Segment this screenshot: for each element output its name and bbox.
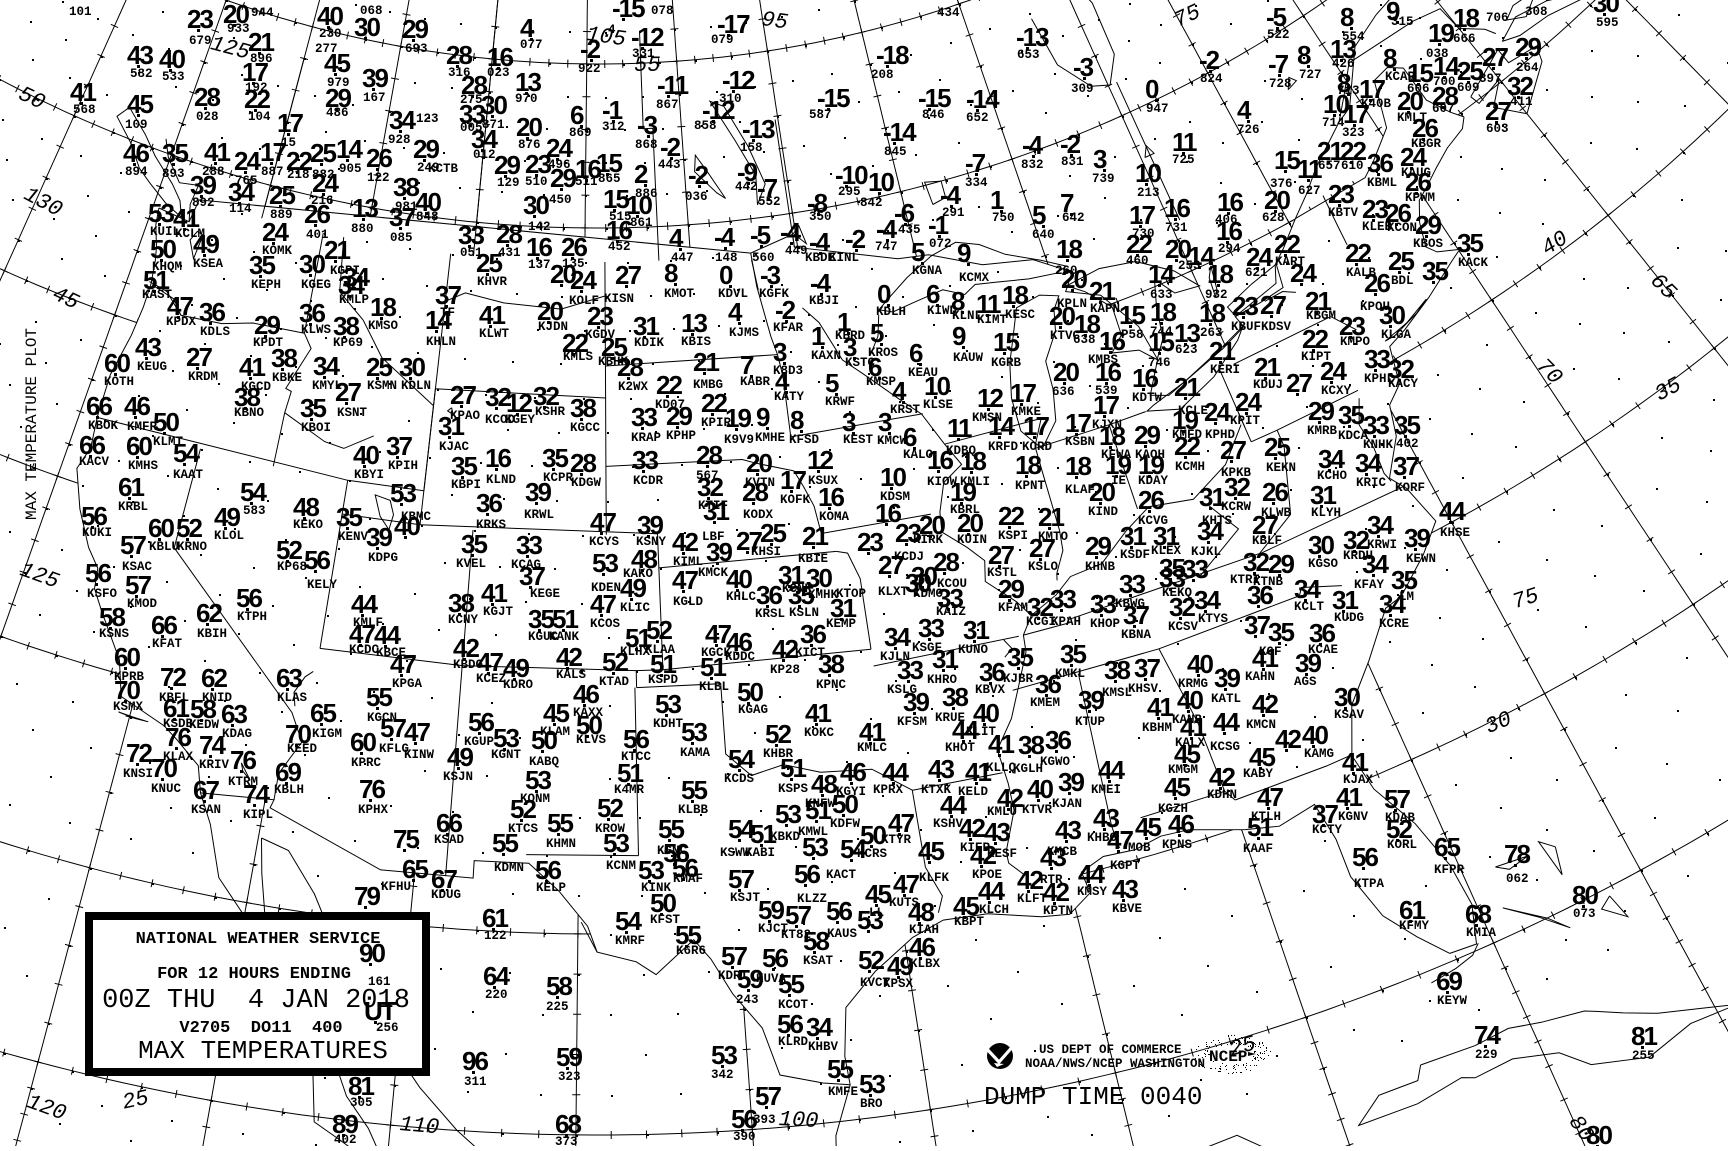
svg-text:KJBR: KJBR (1003, 672, 1034, 686)
svg-text:KAUW: KAUW (953, 351, 984, 365)
svg-text:22: 22 (1174, 431, 1200, 461)
svg-text:34: 34 (1355, 448, 1382, 478)
svg-text:KOKC: KOKC (804, 726, 835, 740)
svg-text:KDLH: KDLH (876, 305, 906, 319)
svg-text:66: 66 (151, 610, 177, 640)
svg-text:893: 893 (162, 167, 185, 181)
svg-text:KSAV: KSAV (1334, 708, 1365, 722)
svg-text:55: 55 (778, 969, 804, 999)
svg-text:KBTV: KBTV (1328, 206, 1359, 220)
svg-text:18: 18 (1199, 298, 1225, 328)
svg-text:KART: KART (1275, 255, 1306, 269)
svg-text:KVEL: KVEL (456, 557, 486, 571)
svg-text:KDUG: KDUG (431, 888, 461, 902)
svg-text:642: 642 (1062, 211, 1085, 225)
svg-text:45: 45 (918, 836, 944, 866)
svg-text:43: 43 (928, 754, 954, 784)
svg-text:KCOS: KCOS (590, 617, 621, 631)
svg-text:633: 633 (1150, 288, 1173, 302)
svg-text:25: 25 (269, 180, 295, 210)
svg-text:51: 51 (700, 652, 726, 682)
svg-text:39: 39 (366, 522, 392, 552)
svg-text:122: 122 (484, 929, 507, 943)
svg-text:47: 47 (1107, 825, 1133, 855)
svg-text:KPIH: KPIH (388, 459, 418, 473)
svg-text:28: 28 (742, 477, 768, 507)
svg-text:KBOI: KBOI (301, 421, 331, 435)
svg-text:17: 17 (1093, 390, 1119, 420)
svg-text:970: 970 (515, 92, 538, 106)
svg-text:FOR 12 HOURS ENDING: FOR 12 HOURS ENDING (157, 965, 351, 984)
svg-text:894: 894 (125, 165, 148, 179)
svg-text:50: 50 (153, 407, 179, 437)
svg-text:KRFD: KRFD (988, 440, 1019, 454)
svg-text:35: 35 (1338, 400, 1364, 430)
svg-text:023: 023 (487, 66, 510, 80)
svg-text:55: 55 (827, 1054, 853, 1084)
svg-text:33: 33 (1364, 344, 1390, 374)
svg-text:19: 19 (1428, 18, 1454, 48)
svg-text:31: 31 (703, 496, 729, 526)
svg-text:KSLN: KSLN (789, 606, 819, 620)
svg-text:882: 882 (312, 168, 335, 182)
svg-text:47: 47 (404, 717, 430, 747)
svg-text:57: 57 (728, 864, 754, 894)
svg-text:824: 824 (1200, 72, 1223, 86)
svg-text:KDSV: KDSV (1261, 320, 1292, 334)
svg-text:35: 35 (300, 393, 326, 423)
svg-text:533: 533 (162, 70, 185, 84)
svg-text:460: 460 (1126, 254, 1149, 268)
svg-text:085: 085 (390, 231, 413, 245)
svg-text:KSMN: KSMN (367, 379, 397, 393)
svg-text:27: 27 (1482, 42, 1508, 72)
svg-text:KBML: KBML (1367, 176, 1397, 190)
svg-text:KATY: KATY (774, 390, 805, 404)
svg-text:47: 47 (1257, 782, 1283, 812)
svg-text:KSEA: KSEA (193, 257, 224, 271)
svg-text:45: 45 (543, 698, 569, 728)
svg-text:46: 46 (573, 679, 599, 709)
svg-text:41: 41 (965, 757, 991, 787)
svg-text:18: 18 (1099, 421, 1125, 451)
svg-text:KMLC: KMLC (857, 741, 888, 755)
svg-text:49: 49 (447, 742, 473, 772)
svg-text:868: 868 (635, 138, 658, 152)
svg-text:41: 41 (239, 352, 265, 382)
svg-text:KSAN: KSAN (191, 803, 221, 817)
svg-text:23: 23 (587, 301, 613, 331)
svg-text:50: 50 (531, 725, 557, 755)
svg-text:28: 28 (696, 440, 722, 470)
svg-text:KMHE: KMHE (755, 431, 785, 445)
svg-text:KBVX: KBVX (975, 683, 1006, 697)
svg-text:KPRC: KPRC (351, 756, 382, 770)
svg-text:846: 846 (922, 108, 945, 122)
svg-text:KEUG: KEUG (137, 360, 167, 374)
svg-text:KEPH: KEPH (251, 278, 281, 292)
svg-text:KFSM: KFSM (897, 715, 927, 729)
svg-text:57: 57 (755, 1081, 781, 1111)
svg-text:17: 17 (1129, 200, 1155, 230)
svg-text:443: 443 (658, 158, 681, 172)
svg-text:59: 59 (556, 1042, 582, 1072)
svg-text:609: 609 (1457, 81, 1480, 95)
svg-text:37: 37 (389, 202, 415, 232)
svg-text:29: 29 (550, 163, 576, 193)
svg-text:24: 24 (234, 146, 261, 176)
svg-text:KLSE: KLSE (923, 398, 953, 412)
svg-text:41: 41 (204, 137, 230, 167)
svg-text:33: 33 (1119, 569, 1145, 599)
svg-text:64: 64 (483, 961, 510, 991)
svg-text:22: 22 (701, 388, 727, 418)
svg-text:731: 731 (1165, 221, 1188, 235)
svg-text:KHLN: KHLN (426, 335, 456, 349)
svg-text:KLND: KLND (486, 473, 517, 487)
svg-text:60: 60 (148, 513, 174, 543)
svg-text:KMIA: KMIA (1466, 926, 1497, 940)
svg-text:16: 16 (818, 482, 844, 512)
svg-text:309: 309 (1071, 82, 1094, 96)
svg-text:BRO: BRO (860, 1097, 883, 1111)
svg-text:MAX TEMPERATURES: MAX TEMPERATURES (138, 1036, 388, 1066)
svg-text:KSMX: KSMX (113, 700, 144, 714)
svg-text:KINW: KINW (404, 748, 435, 762)
svg-text:35: 35 (451, 451, 477, 481)
svg-text:23: 23 (1328, 179, 1354, 209)
svg-text:26: 26 (304, 199, 330, 229)
svg-text:39: 39 (1078, 685, 1104, 715)
svg-text:39: 39 (1295, 648, 1321, 678)
svg-text:35: 35 (162, 138, 188, 168)
svg-text:KDHN: KDHN (1207, 788, 1237, 802)
svg-text:KCDS: KCDS (724, 772, 755, 786)
svg-text:26: 26 (366, 143, 392, 173)
svg-text:KTAD: KTAD (599, 675, 630, 689)
svg-text:243: 243 (736, 993, 759, 1007)
svg-text:KGNT: KGNT (491, 748, 522, 762)
svg-text:727: 727 (1299, 68, 1322, 82)
svg-text:KMRF: KMRF (615, 934, 645, 948)
svg-text:41: 41 (479, 300, 505, 330)
svg-text:34: 34 (884, 622, 911, 652)
svg-text:-11: -11 (657, 70, 689, 100)
svg-text:KSAT: KSAT (803, 954, 834, 968)
svg-text:KBOS: KBOS (1413, 237, 1444, 251)
svg-text:44: 44 (1439, 496, 1466, 526)
svg-text:36: 36 (756, 580, 782, 610)
svg-text:18: 18 (1002, 280, 1028, 310)
svg-text:58: 58 (546, 971, 572, 1001)
svg-text:40: 40 (1302, 720, 1328, 750)
svg-text:739: 739 (1092, 172, 1115, 186)
svg-text:KOTH: KOTH (104, 375, 134, 389)
svg-text:402: 402 (334, 1133, 357, 1146)
svg-text:35: 35 (1394, 410, 1420, 440)
svg-text:845: 845 (884, 145, 907, 159)
svg-text:-14: -14 (966, 84, 1000, 114)
svg-text:42: 42 (1252, 689, 1278, 719)
svg-text:24: 24 (1204, 397, 1231, 427)
svg-text:46: 46 (840, 757, 866, 787)
svg-text:17: 17 (260, 137, 286, 167)
svg-text:KCEZ: KCEZ (476, 672, 506, 686)
svg-text:27: 27 (1029, 533, 1055, 563)
svg-text:18: 18 (1453, 3, 1479, 33)
svg-text:666: 666 (1453, 32, 1476, 46)
svg-text:KAMA: KAMA (680, 746, 711, 760)
svg-text:54: 54 (728, 744, 755, 774)
svg-text:KMAF: KMAF (673, 872, 703, 886)
svg-text:KBIH: KBIH (197, 627, 227, 641)
svg-text:12: 12 (977, 383, 1003, 413)
svg-text:104: 104 (248, 110, 271, 124)
svg-text:KGEY: KGEY (505, 413, 536, 427)
svg-text:51: 51 (780, 753, 806, 783)
svg-text:110: 110 (399, 1112, 441, 1140)
svg-text:10: 10 (868, 167, 894, 197)
svg-text:657: 657 (1318, 159, 1341, 173)
svg-text:18: 18 (1207, 259, 1233, 289)
svg-text:KABR: KABR (740, 375, 771, 389)
svg-text:KELP: KELP (536, 881, 566, 895)
svg-text:29: 29 (666, 401, 692, 431)
svg-text:220: 220 (485, 988, 508, 1002)
svg-text:342: 342 (711, 1068, 734, 1082)
svg-text:23: 23 (187, 4, 213, 34)
svg-text:137: 137 (528, 258, 551, 272)
svg-text:31: 31 (438, 411, 464, 441)
svg-text:17: 17 (277, 108, 303, 138)
svg-text:33: 33 (1090, 589, 1116, 619)
svg-text:KBLU: KBLU (149, 540, 179, 554)
svg-text:45: 45 (1135, 812, 1161, 842)
svg-text:56: 56 (794, 859, 820, 889)
svg-text:KCRS: KCRS (857, 847, 888, 861)
svg-text:KDFW: KDFW (830, 817, 861, 831)
svg-text:308: 308 (1525, 5, 1548, 19)
svg-text:KCRE: KCRE (1379, 617, 1409, 631)
svg-text:26: 26 (1138, 485, 1164, 515)
svg-text:20: 20 (1061, 264, 1087, 294)
svg-text:KGNA: KGNA (912, 264, 943, 278)
svg-text:KMSO: KMSO (368, 319, 399, 333)
svg-text:34: 34 (1367, 510, 1394, 540)
svg-text:KEMP: KEMP (826, 617, 856, 631)
svg-text:KFMY: KFMY (1399, 919, 1430, 933)
svg-text:44: 44 (351, 589, 378, 619)
svg-text:KIPL: KIPL (243, 808, 273, 822)
svg-text:KGPT: KGPT (1110, 859, 1141, 873)
svg-text:31: 31 (1120, 521, 1146, 551)
svg-text:30: 30 (299, 249, 325, 279)
svg-text:KBLF: KBLF (1252, 534, 1282, 548)
svg-text:41: 41 (481, 578, 507, 608)
svg-text:25: 25 (1264, 432, 1290, 462)
svg-text:KMSY: KMSY (1077, 885, 1108, 899)
svg-text:42: 42 (970, 840, 996, 870)
svg-text:KAMG: KAMG (1304, 747, 1334, 761)
svg-text:KTYR: KTYR (881, 833, 912, 847)
svg-text:623: 623 (1175, 343, 1198, 357)
svg-text:43: 43 (1040, 842, 1066, 872)
svg-text:KP68: KP68 (277, 560, 307, 574)
svg-text:22: 22 (998, 501, 1024, 531)
svg-text:KFHU: KFHU (381, 880, 411, 894)
svg-text:43: 43 (135, 332, 161, 362)
svg-text:KPDX: KPDX (166, 315, 197, 329)
svg-text:KORF: KORF (1395, 481, 1425, 495)
svg-text:35: 35 (249, 250, 275, 280)
svg-text:KEED: KEED (287, 742, 318, 756)
svg-text:28: 28 (570, 448, 596, 478)
svg-text:KENV: KENV (338, 530, 369, 544)
svg-text:55: 55 (681, 775, 707, 805)
svg-text:KHBV: KHBV (808, 1040, 839, 1054)
svg-text:294: 294 (1218, 242, 1241, 256)
svg-text:KIGM: KIGM (312, 727, 342, 741)
svg-text:74: 74 (243, 779, 270, 809)
svg-text:40: 40 (1177, 685, 1203, 715)
svg-text:880: 880 (351, 222, 374, 236)
svg-text:KCYS: KCYS (589, 535, 620, 549)
svg-text:KFAT: KFAT (152, 637, 183, 651)
svg-text:311: 311 (464, 1075, 487, 1089)
svg-text:KTUP: KTUP (1075, 715, 1105, 729)
svg-text:35: 35 (336, 502, 362, 532)
svg-text:53: 53 (592, 548, 618, 578)
svg-text:29: 29 (1085, 531, 1111, 561)
svg-text:65: 65 (310, 698, 336, 728)
svg-text:DUMP TIME 0040: DUMP TIME 0040 (984, 1082, 1202, 1112)
svg-text:750: 750 (992, 211, 1015, 225)
svg-text:24: 24 (262, 217, 289, 247)
svg-text:38: 38 (271, 343, 297, 373)
svg-text:27: 27 (1286, 368, 1312, 398)
svg-text:KRBL: KRBL (118, 500, 148, 514)
svg-text:59: 59 (737, 964, 763, 994)
svg-text:KHOP: KHOP (1090, 617, 1120, 631)
svg-text:397: 397 (1479, 72, 1502, 86)
svg-text:75: 75 (393, 824, 419, 854)
svg-text:69: 69 (1436, 966, 1462, 996)
svg-text:312: 312 (602, 120, 625, 134)
svg-text:27: 27 (1260, 290, 1286, 320)
svg-text:28: 28 (496, 219, 522, 249)
svg-text:KBYI: KBYI (354, 468, 384, 482)
svg-text:KEWN: KEWN (1406, 552, 1436, 566)
svg-text:63: 63 (276, 663, 302, 693)
svg-text:KLGA: KLGA (1381, 328, 1412, 342)
svg-text:21: 21 (802, 521, 828, 551)
svg-text:55: 55 (366, 682, 392, 712)
svg-text:587: 587 (809, 108, 832, 122)
svg-text:28: 28 (617, 352, 643, 382)
svg-text:KMOD: KMOD (127, 597, 158, 611)
svg-text:KHMN: KHMN (546, 837, 576, 851)
svg-text:36: 36 (1035, 669, 1061, 699)
svg-text:45: 45 (324, 48, 350, 78)
svg-text:57: 57 (125, 570, 151, 600)
svg-text:20: 20 (1089, 477, 1115, 507)
svg-text:33: 33 (897, 655, 923, 685)
svg-text:50: 50 (860, 820, 886, 850)
svg-text:431: 431 (498, 246, 521, 260)
svg-text:KTVR: KTVR (1022, 803, 1053, 817)
svg-text:028: 028 (196, 110, 219, 124)
svg-text:621: 621 (1245, 266, 1268, 280)
svg-text:KBGM: KBGM (1306, 309, 1336, 323)
svg-text:40: 40 (1027, 774, 1053, 804)
svg-text:101: 101 (69, 5, 92, 19)
svg-text:831: 831 (1061, 155, 1084, 169)
svg-text:29: 29 (1415, 210, 1441, 240)
svg-text:24: 24 (1235, 387, 1262, 417)
svg-text:21: 21 (693, 347, 719, 377)
svg-text:-13: -13 (742, 114, 775, 144)
svg-text:KEST: KEST (843, 433, 874, 447)
svg-text:KGRB: KGRB (991, 356, 1022, 370)
svg-text:KDLS: KDLS (200, 325, 231, 339)
svg-text:KCMH: KCMH (1175, 460, 1205, 474)
svg-text:41: 41 (1336, 782, 1362, 812)
svg-text:29: 29 (1308, 396, 1334, 426)
svg-text:35: 35 (1422, 256, 1448, 286)
svg-text:122: 122 (367, 171, 390, 185)
svg-text:KSDF: KSDF (1120, 548, 1150, 562)
svg-text:30: 30 (481, 90, 507, 120)
svg-text:062: 062 (1506, 872, 1529, 886)
svg-text:53: 53 (655, 689, 681, 719)
svg-text:161: 161 (368, 975, 391, 989)
svg-text:34: 34 (806, 1012, 833, 1042)
svg-text:-14: -14 (883, 117, 917, 147)
svg-text:60: 60 (104, 348, 130, 378)
svg-text:KEYW: KEYW (1437, 994, 1468, 1008)
svg-text:KPHX: KPHX (358, 803, 389, 817)
svg-text:55: 55 (634, 53, 660, 78)
svg-text:933: 933 (227, 22, 250, 36)
svg-text:78: 78 (1504, 839, 1530, 869)
svg-text:887: 887 (261, 165, 284, 179)
svg-text:16: 16 (1099, 326, 1125, 356)
svg-text:51: 51 (750, 819, 776, 849)
svg-text:KCTY: KCTY (1312, 823, 1343, 837)
svg-text:KPTN: KPTN (1043, 904, 1073, 918)
svg-text:76: 76 (359, 774, 385, 804)
svg-text:KCNM: KCNM (606, 859, 636, 873)
svg-text:34: 34 (389, 105, 416, 135)
svg-text:842: 842 (860, 196, 883, 210)
svg-text:39: 39 (1214, 663, 1240, 693)
svg-text:582: 582 (130, 67, 153, 81)
svg-text:230: 230 (319, 27, 342, 41)
svg-text:17: 17 (1065, 408, 1091, 438)
svg-text:28: 28 (194, 82, 220, 112)
svg-text:26: 26 (1364, 268, 1390, 298)
svg-text:486: 486 (326, 106, 349, 120)
svg-text:38: 38 (570, 393, 596, 423)
svg-text:KIMT: KIMT (977, 313, 1008, 327)
svg-text:KELY: KELY (307, 578, 338, 592)
svg-text:765: 765 (235, 174, 258, 188)
svg-text:NATIONAL WEATHER SERVICE: NATIONAL WEATHER SERVICE (136, 930, 381, 949)
svg-text:13: 13 (352, 193, 378, 223)
svg-text:KHVR: KHVR (477, 275, 508, 289)
svg-text:53: 53 (390, 478, 416, 508)
svg-text:148: 148 (715, 251, 738, 265)
